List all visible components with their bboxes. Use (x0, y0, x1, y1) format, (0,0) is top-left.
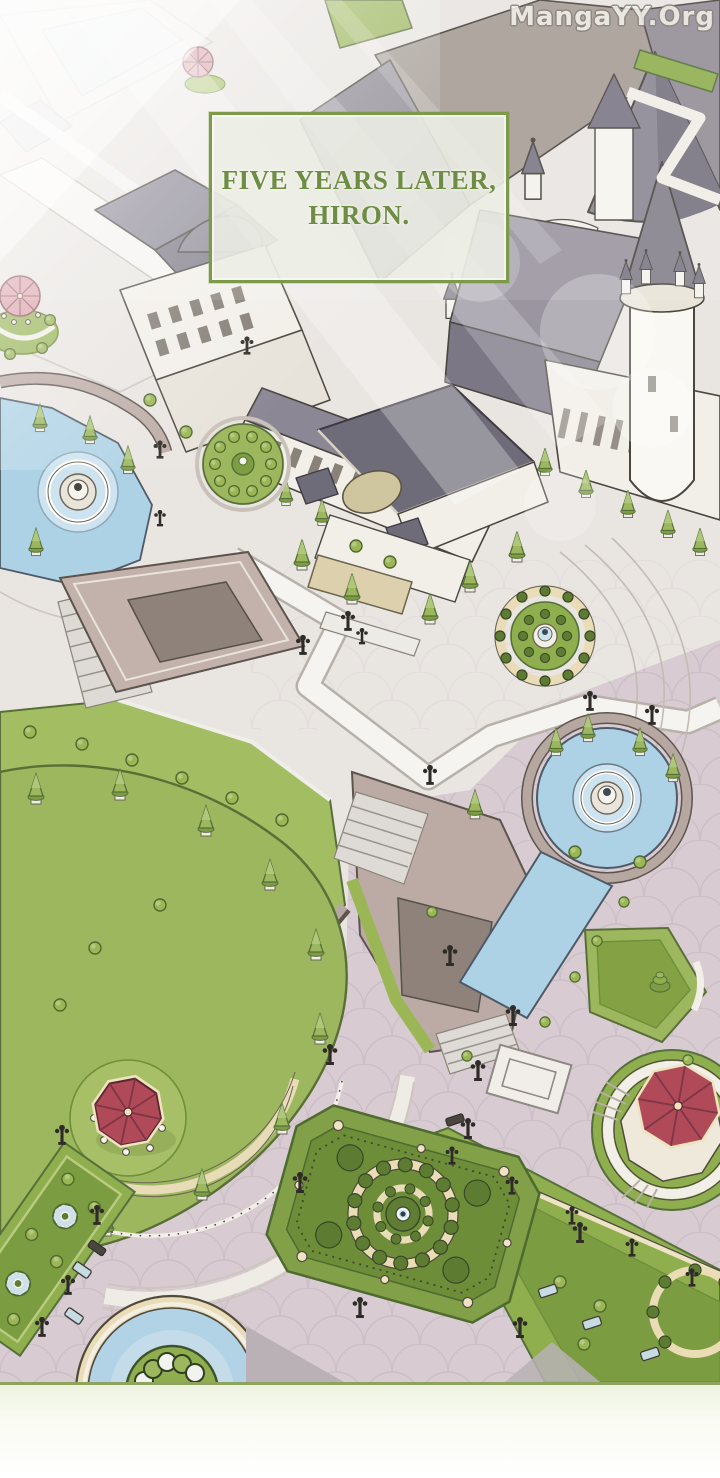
caption-box: FIVE YEARS LATER, HIRON. (209, 112, 509, 283)
caption-line-1: FIVE YEARS LATER, (222, 164, 497, 196)
panel-gutter (0, 1382, 720, 1478)
caption-line-2: HIRON. (308, 199, 409, 231)
site-watermark: MangaYY.Org (509, 2, 715, 32)
manga-panel: FIVE YEARS LATER, HIRON. MangaYY.Org (0, 0, 720, 1478)
